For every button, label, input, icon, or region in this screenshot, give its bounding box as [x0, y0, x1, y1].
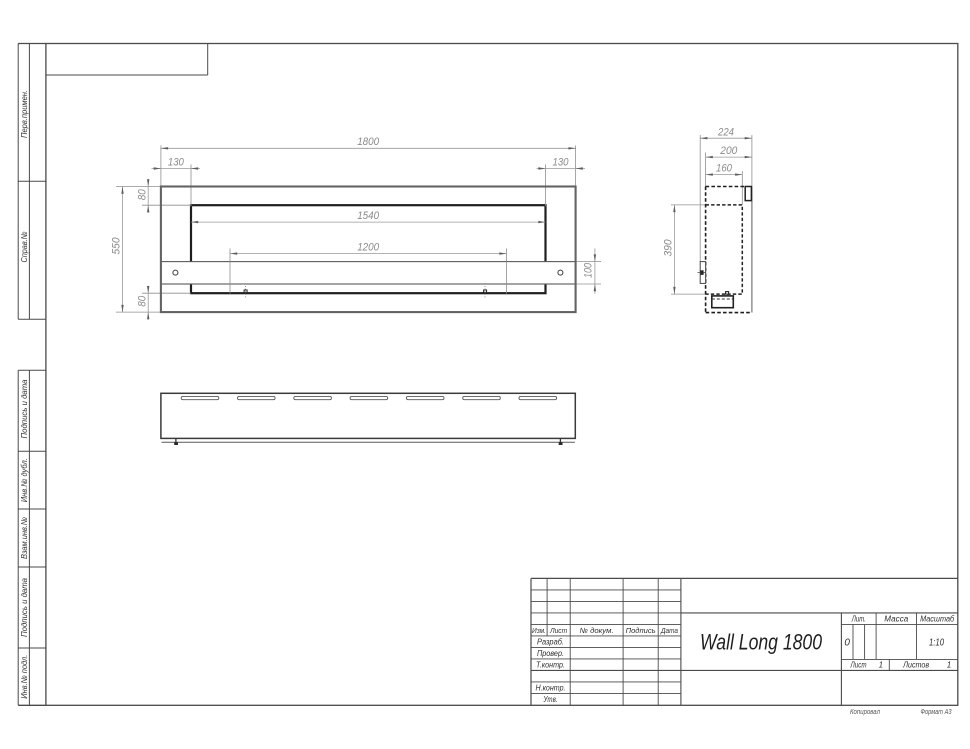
svg-text:Копировал: Копировал [850, 709, 880, 716]
svg-text:100: 100 [583, 262, 595, 278]
svg-text:Справ.№: Справ.№ [19, 232, 29, 263]
svg-text:80: 80 [136, 295, 148, 307]
svg-text:Дата: Дата [660, 626, 678, 635]
svg-text:Масса: Масса [884, 615, 909, 624]
svg-text:Лист: Лист [850, 661, 867, 670]
svg-text:Н.контр.: Н.контр. [536, 684, 566, 693]
svg-text:Формат A3: Формат A3 [921, 709, 952, 716]
svg-text:550: 550 [111, 237, 123, 255]
svg-text:Инв.№ дубл.: Инв.№ дубл. [19, 458, 29, 502]
svg-text:Т.контр.: Т.контр. [536, 661, 565, 670]
svg-text:0: 0 [844, 638, 850, 649]
svg-text:№ докум.: № докум. [580, 626, 614, 635]
svg-text:Перв.примен.: Перв.примен. [19, 90, 29, 138]
svg-text:1: 1 [879, 661, 883, 670]
svg-text:Wall Long 1800: Wall Long 1800 [700, 630, 822, 655]
svg-text:Подпись: Подпись [626, 626, 656, 635]
svg-text:Лист: Лист [549, 626, 567, 635]
svg-text:Утв.: Утв. [543, 695, 558, 704]
svg-text:Лит.: Лит. [851, 615, 866, 624]
svg-text:224: 224 [717, 126, 734, 138]
svg-text:1:10: 1:10 [929, 638, 944, 649]
svg-text:Инв.№ подл.: Инв.№ подл. [19, 655, 29, 699]
svg-text:1800: 1800 [357, 136, 380, 148]
svg-text:130: 130 [168, 157, 185, 169]
svg-text:160: 160 [716, 163, 733, 175]
svg-text:Масштаб: Масштаб [920, 615, 954, 624]
svg-text:1540: 1540 [357, 210, 380, 222]
svg-text:Изм.: Изм. [532, 626, 546, 635]
svg-text:1200: 1200 [357, 242, 380, 254]
svg-text:80: 80 [136, 189, 148, 201]
svg-text:Разраб.: Разраб. [537, 638, 564, 647]
svg-text:Взам.инв.№: Взам.инв.№ [19, 517, 29, 559]
svg-text:1: 1 [947, 661, 951, 670]
svg-text:Подпись и дата: Подпись и дата [19, 379, 29, 438]
svg-text:200: 200 [719, 145, 738, 157]
svg-text:Подпись и дата: Подпись и дата [19, 578, 29, 637]
svg-text:390: 390 [662, 239, 674, 257]
svg-text:130: 130 [553, 157, 570, 169]
svg-text:Листов: Листов [902, 661, 929, 670]
svg-text:Провер.: Провер. [537, 649, 564, 658]
